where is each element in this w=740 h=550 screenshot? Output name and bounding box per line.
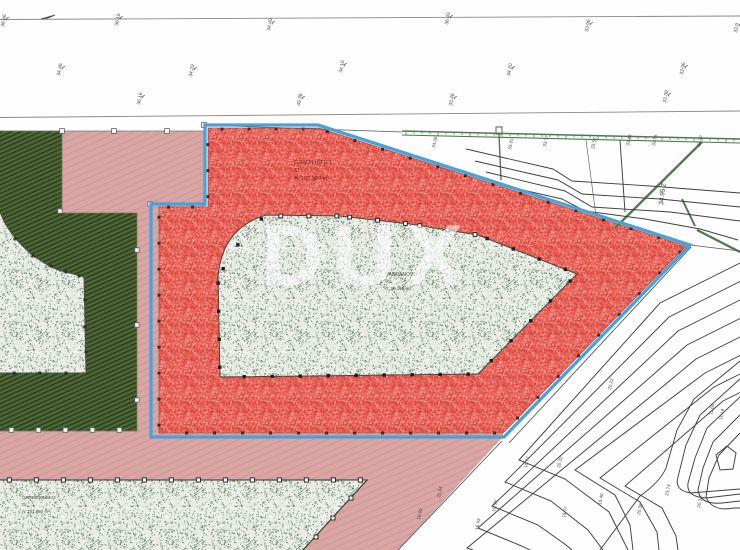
svg-text:Gr.: Gr. [22, 502, 28, 507]
svg-text:A: 101.850 m²: A: 101.850 m² [22, 509, 50, 514]
svg-text:33.9: 33.9 [733, 23, 740, 34]
svg-text:GRAĐEVINSKO: GRAĐEVINSKO [22, 495, 56, 500]
svg-text:GRADILIŠTE 1: GRADILIŠTE 1 [294, 159, 332, 166]
svg-text:DUX: DUX [261, 208, 473, 304]
svg-text:51: 51 [294, 168, 300, 174]
svg-text:A: 130.360 m²: A: 130.360 m² [294, 176, 329, 182]
